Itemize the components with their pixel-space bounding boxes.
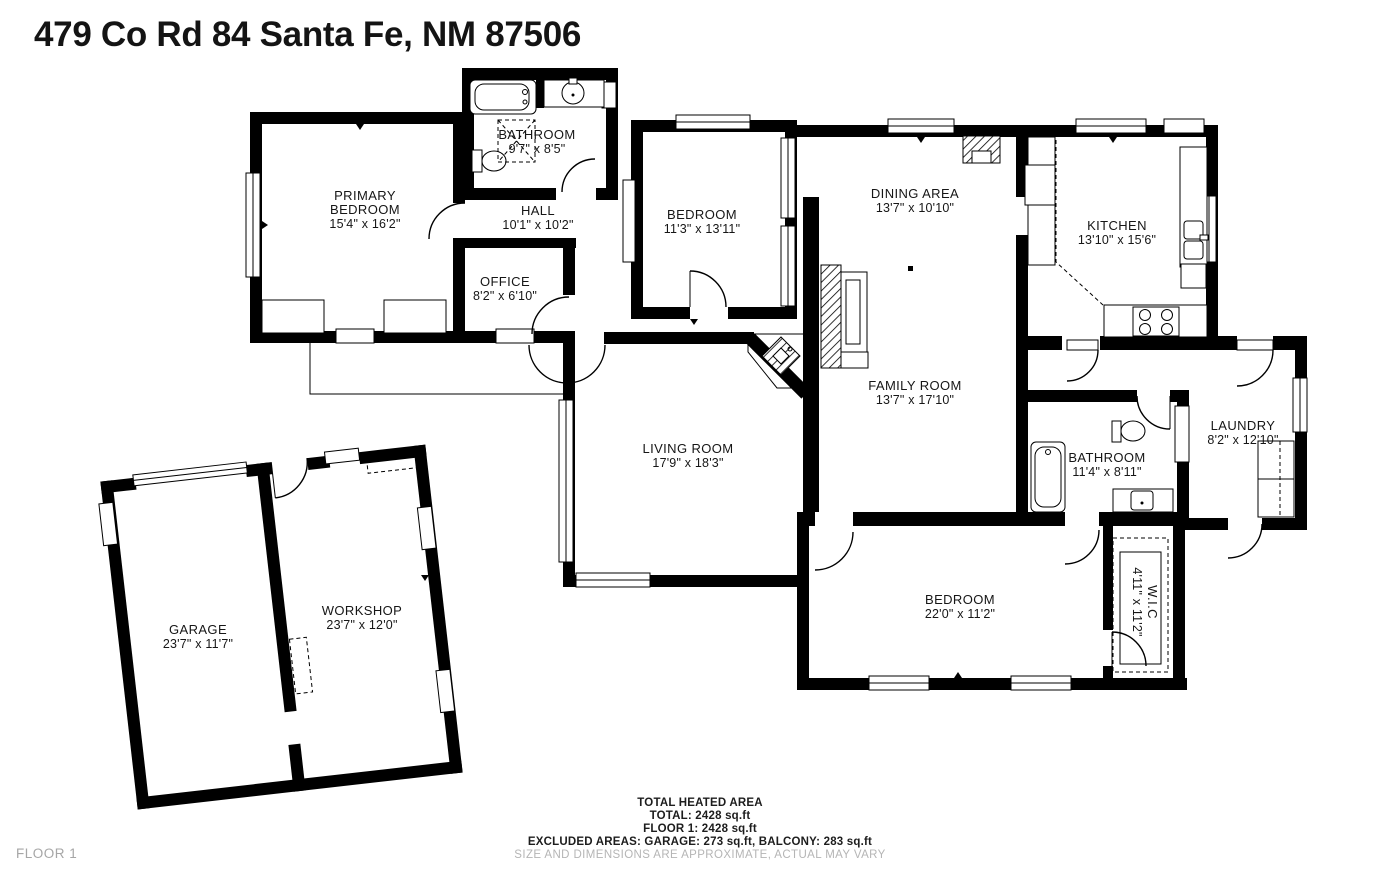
svg-text:PRIMARY: PRIMARY [334, 188, 396, 203]
stove [1133, 307, 1179, 336]
room-label-workshop: WORKSHOP 23'7" x 12'0" [322, 603, 402, 632]
closet [262, 300, 324, 333]
floorplan-page: 479 Co Rd 84 Santa Fe, NM 87506 [0, 0, 1400, 874]
summary-heading: TOTAL HEATED AREA [637, 797, 762, 809]
door-arc [271, 458, 311, 498]
summary-total: TOTAL: 2428 sq.ft [650, 810, 751, 822]
chimney [963, 136, 1000, 163]
window [781, 138, 795, 218]
room-label-garage: GARAGE 23'7" x 11'7" [163, 622, 233, 651]
window [1175, 406, 1189, 462]
svg-text:10'1" x 10'2": 10'1" x 10'2" [502, 218, 573, 232]
room-label-laundry: LAUNDRY 8'2" x 12'10" [1207, 418, 1278, 447]
washer-dryer [1258, 441, 1294, 517]
window [417, 506, 436, 549]
svg-text:9'7" x 8'5": 9'7" x 8'5" [509, 142, 566, 156]
svg-text:13'10" x 15'6": 13'10" x 15'6" [1078, 233, 1156, 247]
fridge [1025, 165, 1055, 205]
svg-text:22'0" x 11'2": 22'0" x 11'2" [925, 607, 995, 621]
door-arc [690, 271, 726, 307]
svg-text:15'4" x 16'2": 15'4" x 16'2" [329, 217, 400, 231]
svg-text:13'7" x 17'10": 13'7" x 17'10" [876, 393, 954, 407]
window [1011, 676, 1071, 690]
summary-floor1: FLOOR 1: 2428 sq.ft [643, 823, 757, 835]
svg-text:BEDROOM: BEDROOM [667, 207, 737, 222]
room-label-hall: HALL 10'1" x 10'2" [502, 203, 573, 232]
window [324, 448, 359, 464]
window [1076, 119, 1146, 133]
svg-text:HALL: HALL [521, 203, 555, 218]
page-title: 479 Co Rd 84 Santa Fe, NM 87506 [34, 15, 581, 54]
svg-text:BATHROOM: BATHROOM [1068, 450, 1145, 465]
svg-text:4'11" x 11'2": 4'11" x 11'2" [1130, 567, 1144, 636]
window [781, 226, 795, 306]
svg-text:W.I.C: W.I.C [1145, 585, 1160, 619]
room-label-living: LIVING ROOM 17'9" x 18'3" [642, 441, 733, 470]
room-label-wic: W.I.C 4'11" x 11'2" [1130, 567, 1160, 636]
door-arc [1237, 350, 1273, 386]
door-arc [1228, 524, 1262, 558]
svg-text:WORKSHOP: WORKSHOP [322, 603, 402, 618]
svg-text:11'4" x 8'11": 11'4" x 8'11" [1072, 465, 1141, 479]
summary-disclaimer: SIZE AND DIMENSIONS ARE APPROXIMATE, ACT… [514, 849, 885, 861]
svg-text:BATHROOM: BATHROOM [498, 127, 575, 142]
door-arc [562, 159, 595, 192]
svg-text:23'7" x 11'7": 23'7" x 11'7" [163, 637, 233, 651]
svg-text:8'2" x 6'10": 8'2" x 6'10" [473, 289, 537, 303]
window [559, 400, 573, 562]
porch-outline [310, 343, 563, 394]
svg-text:KITCHEN: KITCHEN [1087, 218, 1147, 233]
door-arc [429, 203, 465, 239]
closet [384, 300, 446, 333]
bathtub [1031, 442, 1065, 512]
svg-text:OFFICE: OFFICE [480, 274, 530, 289]
svg-text:11'3" x 13'11": 11'3" x 13'11" [664, 222, 740, 236]
svg-text:LAUNDRY: LAUNDRY [1211, 418, 1276, 433]
floor-badge: FLOOR 1 [16, 846, 77, 861]
window [576, 573, 650, 587]
room-label-bedroom-mid: BEDROOM 11'3" x 13'11" [664, 207, 740, 236]
floorplan-canvas: 479 Co Rd 84 Santa Fe, NM 87506 [0, 0, 1400, 874]
room-label-kitchen: KITCHEN 13'10" x 15'6" [1078, 218, 1156, 247]
svg-text:LIVING ROOM: LIVING ROOM [642, 441, 733, 456]
svg-text:BEDROOM: BEDROOM [330, 202, 400, 217]
sink [544, 78, 604, 107]
window [888, 119, 954, 133]
room-label-primary-bedroom: PRIMARY BEDROOM 15'4" x 16'2" [329, 188, 400, 231]
room-label-bathroom-right: BATHROOM 11'4" x 8'11" [1068, 450, 1145, 479]
svg-text:23'7" x 12'0": 23'7" x 12'0" [326, 618, 397, 632]
svg-text:13'7" x 10'10": 13'7" x 10'10" [876, 201, 954, 215]
svg-text:GARAGE: GARAGE [169, 622, 227, 637]
window [1293, 378, 1307, 432]
room-label-office: OFFICE 8'2" x 6'10" [473, 274, 537, 303]
room-label-dining: DINING AREA 13'7" x 10'10" [871, 186, 959, 215]
svg-text:BEDROOM: BEDROOM [925, 592, 995, 607]
door-arc [532, 297, 569, 334]
svg-text:8'2" x 12'10": 8'2" x 12'10" [1207, 433, 1278, 447]
svg-text:FAMILY ROOM: FAMILY ROOM [868, 378, 962, 393]
door-arc [1067, 350, 1098, 381]
window [336, 329, 374, 343]
fireplace [821, 265, 868, 368]
window [1164, 119, 1204, 133]
toilet [472, 150, 506, 172]
window [623, 180, 635, 262]
door-arc [1065, 530, 1099, 564]
window [496, 329, 534, 343]
room-label-bathroom-top: BATHROOM 9'7" x 8'5" [498, 127, 575, 156]
room-label-bedroom-bottom: BEDROOM 22'0" x 11'2" [925, 592, 995, 621]
ceiling-marker [908, 266, 913, 271]
window [436, 669, 455, 712]
window [676, 115, 750, 129]
dishwasher [1181, 264, 1206, 288]
summary-excluded: EXCLUDED AREAS: GARAGE: 273 sq.ft, BALCO… [528, 836, 872, 848]
door-arc [815, 532, 853, 570]
area-summary: TOTAL HEATED AREA TOTAL: 2428 sq.ft FLOO… [514, 797, 885, 861]
bathtub [470, 80, 536, 114]
toilet [1112, 421, 1145, 442]
window [246, 173, 260, 277]
sink-vanity [1113, 489, 1173, 512]
garage-workshop-block [96, 441, 463, 810]
window [869, 676, 929, 690]
door-arc [1112, 632, 1146, 666]
room-label-family: FAMILY ROOM 13'7" x 17'10" [868, 378, 962, 407]
svg-text:17'9" x 18'3": 17'9" x 18'3" [652, 456, 723, 470]
svg-text:DINING AREA: DINING AREA [871, 186, 959, 201]
